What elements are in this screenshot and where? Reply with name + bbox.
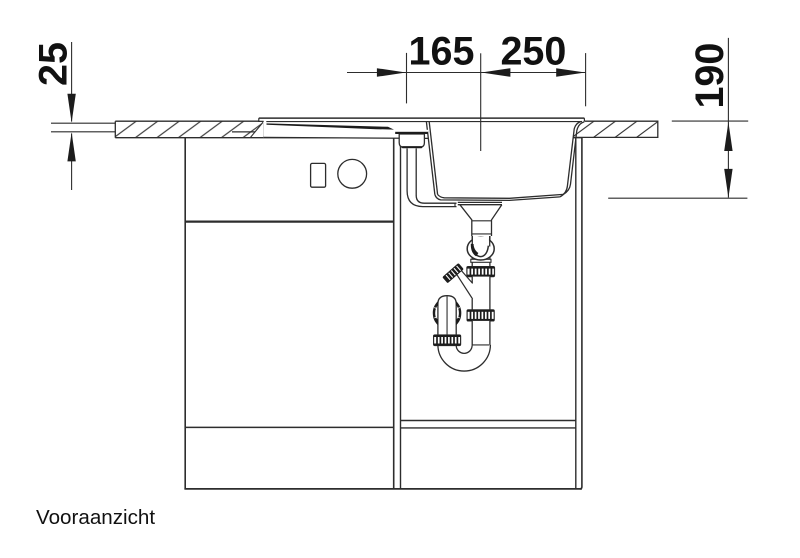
- svg-text:165: 165: [409, 29, 475, 73]
- svg-text:25: 25: [32, 42, 76, 86]
- svg-text:250: 250: [500, 29, 566, 73]
- svg-text:190: 190: [688, 43, 732, 109]
- svg-text:Vooraanzicht: Vooraanzicht: [36, 506, 155, 529]
